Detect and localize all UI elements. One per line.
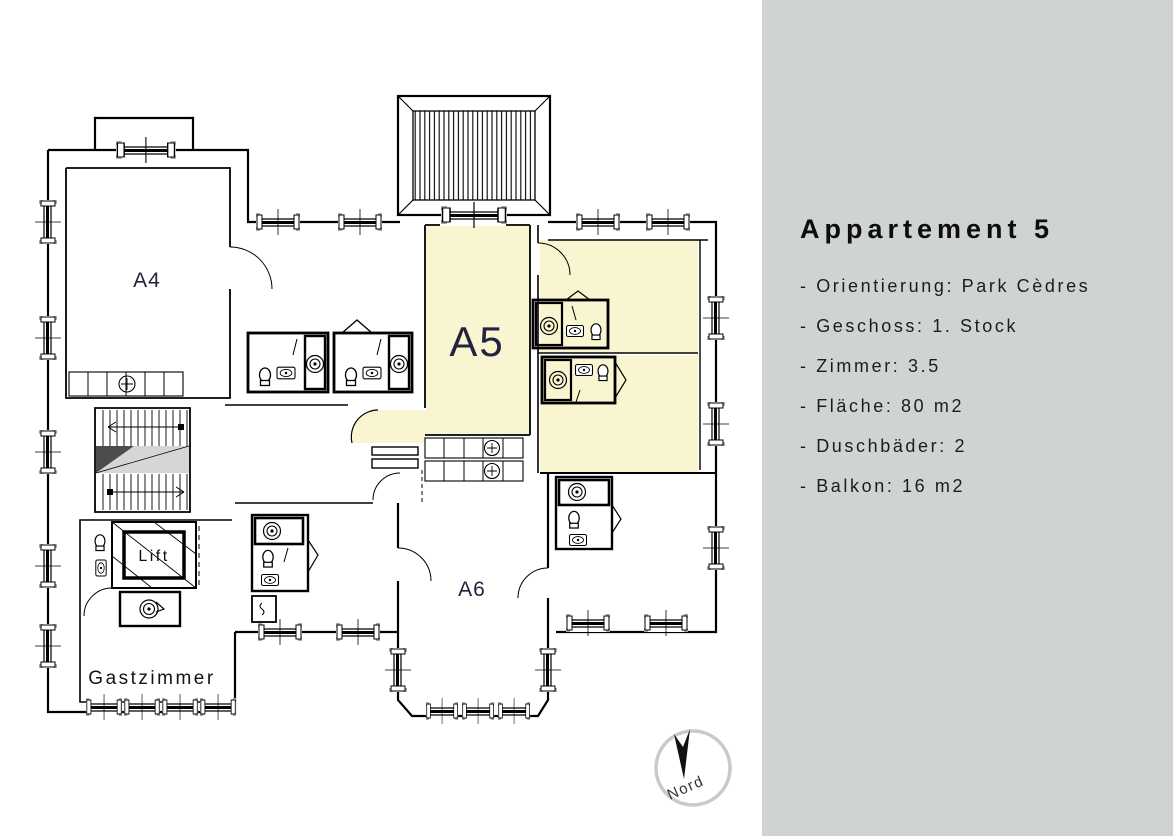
room-label-a4[interactable]: A4 bbox=[133, 269, 161, 292]
door-arc bbox=[398, 548, 431, 581]
toilet-icon bbox=[591, 324, 601, 340]
shower-icon bbox=[569, 484, 586, 501]
sink-icon bbox=[277, 367, 295, 379]
sink-icon bbox=[567, 325, 584, 336]
room-a4[interactable]: A4 bbox=[66, 168, 272, 398]
info-panel: Appartement 5 - Orientierung: Park Cèdre… bbox=[762, 0, 1173, 836]
detail-flaeche: - Fläche: 80 m2 bbox=[800, 386, 1090, 426]
floor-plan-area: A4 bbox=[0, 0, 762, 836]
room-label-a5[interactable]: A5 bbox=[449, 318, 504, 365]
a5-room-east-lower-highlight[interactable] bbox=[540, 355, 698, 472]
shower-icon bbox=[264, 523, 281, 540]
detail-duschbaeder: - Duschbäder: 2 bbox=[800, 426, 1090, 466]
radiator-strip bbox=[69, 372, 183, 396]
toilet-icon bbox=[260, 368, 271, 386]
room-southeast bbox=[518, 477, 621, 598]
room-label-a6[interactable]: A6 bbox=[458, 578, 486, 601]
sink-icon bbox=[570, 534, 587, 545]
a5-room-east-upper-highlight[interactable] bbox=[540, 240, 698, 352]
bathroom-middle-left bbox=[248, 333, 328, 392]
wc bbox=[95, 535, 106, 576]
apartment-title: Appartement 5 bbox=[800, 214, 1054, 245]
sink-icon bbox=[363, 367, 381, 379]
balcony-door bbox=[441, 202, 507, 228]
toilet-icon bbox=[263, 550, 273, 567]
toilet-icon bbox=[569, 511, 579, 528]
detail-zimmer: - Zimmer: 3.5 bbox=[800, 346, 1090, 386]
door-arc bbox=[518, 568, 548, 598]
detail-orientierung: - Orientierung: Park Cèdres bbox=[800, 266, 1090, 306]
balcony bbox=[398, 96, 550, 215]
hall-radiators bbox=[425, 438, 523, 481]
door-arc bbox=[84, 588, 112, 616]
sink-icon bbox=[262, 574, 279, 585]
shower-icon bbox=[307, 356, 324, 373]
gastzimmer-label: Gastzimmer bbox=[88, 668, 215, 689]
gastzimmer-suite: Lift Gastzimmer bbox=[80, 520, 232, 702]
bathroom-west-of-a6 bbox=[252, 515, 318, 622]
toilet-icon bbox=[598, 365, 608, 381]
lift-shaft: Lift bbox=[112, 522, 199, 588]
door-arc bbox=[373, 473, 400, 500]
door-arc bbox=[230, 247, 272, 289]
north-compass: Nord bbox=[656, 729, 730, 805]
stairwell bbox=[95, 408, 190, 512]
laundry bbox=[120, 592, 180, 626]
floor-plan-svg: A4 bbox=[0, 0, 762, 836]
page: A4 bbox=[0, 0, 1173, 836]
sink-icon bbox=[96, 560, 106, 576]
shower-icon bbox=[391, 356, 408, 373]
detail-geschoss: - Geschoss: 1. Stock bbox=[800, 306, 1090, 346]
lift-label[interactable]: Lift bbox=[138, 548, 169, 565]
toilet-icon bbox=[95, 535, 105, 551]
room-a6[interactable]: A6 bbox=[398, 548, 486, 601]
toilet-icon bbox=[346, 368, 357, 386]
detail-list: - Orientierung: Park Cèdres - Geschoss: … bbox=[800, 266, 1090, 506]
sink-icon bbox=[576, 364, 593, 375]
detail-balkon: - Balkon: 16 m2 bbox=[800, 466, 1090, 506]
bathroom-middle-right bbox=[334, 320, 412, 392]
